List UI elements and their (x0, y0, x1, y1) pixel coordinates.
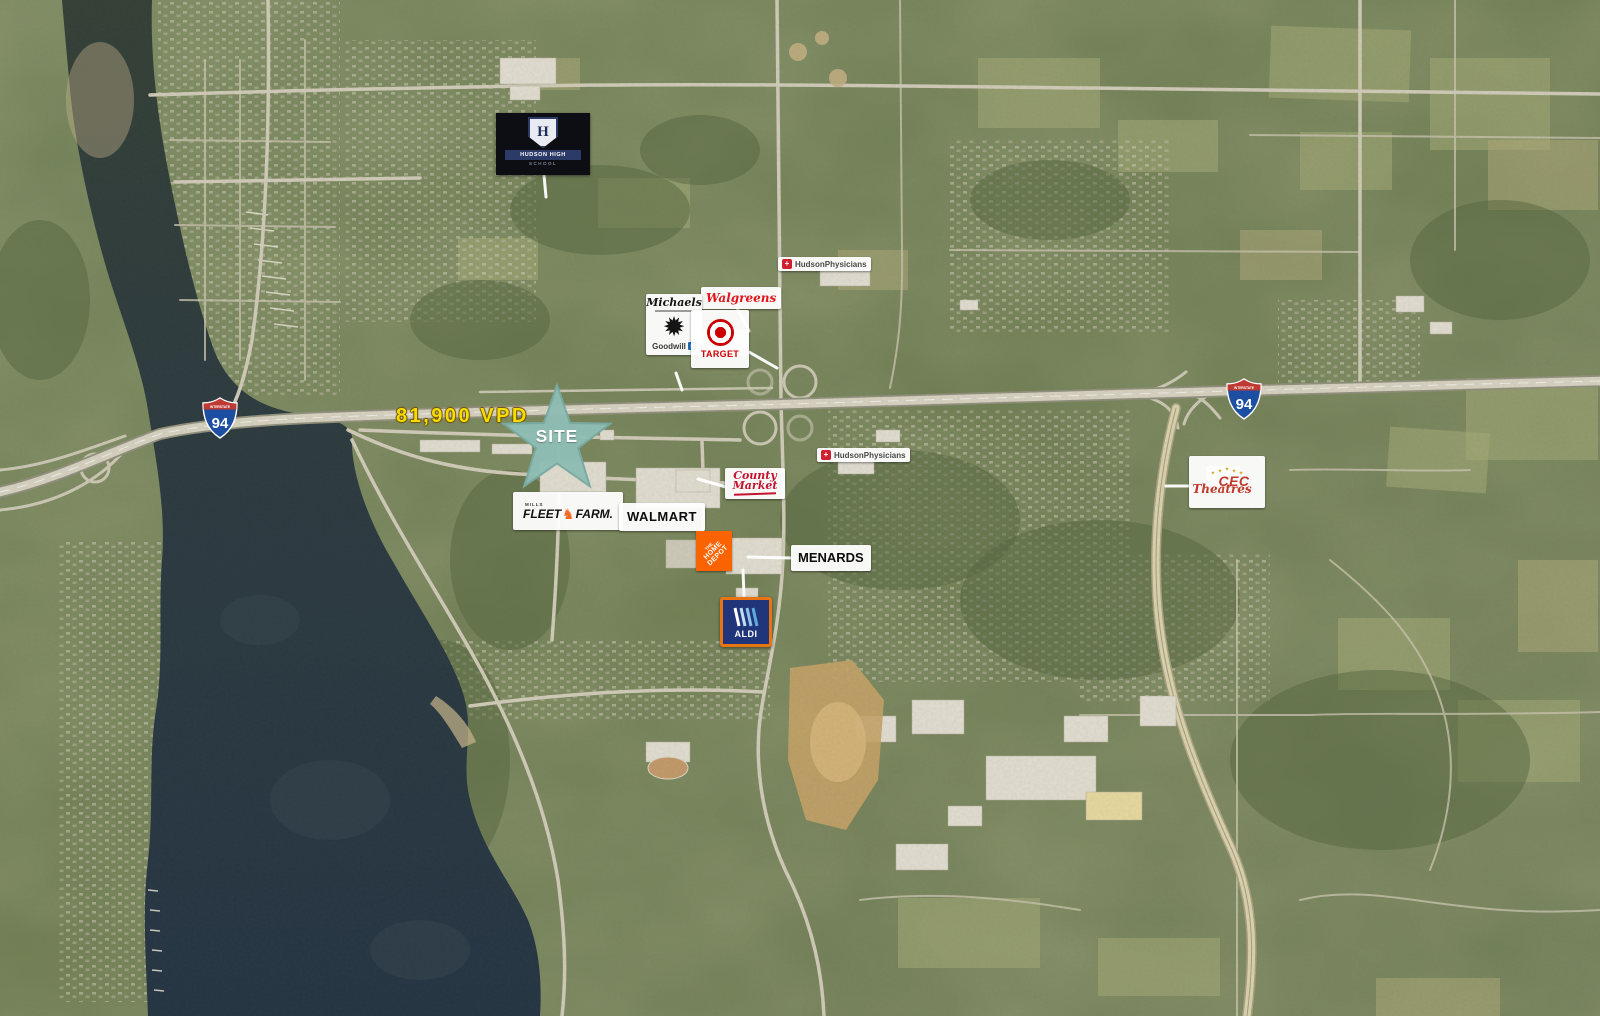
school-banner: HUDSON HIGH (505, 150, 581, 160)
svg-text:94: 94 (212, 415, 229, 432)
aldi-stripes-icon (731, 606, 761, 628)
svg-text:INTERSTATE: INTERSTATE (210, 405, 231, 409)
fleet-farm-label: MILLS FLEET ♞ FARM. (513, 492, 623, 530)
site-star-marker: SITE (496, 377, 618, 499)
hudson-physicians-south-label: + HudsonPhysicians (817, 448, 910, 462)
home-depot-label: THE HOME DEPOT (696, 531, 732, 571)
svg-text:SITE: SITE (536, 426, 578, 446)
medical-cross-icon: + (782, 259, 792, 269)
county-market-label: County Market (725, 468, 785, 499)
michaels-logo: Michaels (646, 297, 702, 308)
fleet-farm-horse-icon: ♞ (562, 508, 575, 520)
hudson-physicians-north-label: + HudsonPhysicians (778, 257, 871, 271)
aldi-label: ALDI (720, 597, 772, 647)
walmart-label: WALMART (619, 503, 705, 531)
menards-label: MENARDS (791, 545, 871, 571)
goodwill-logo: Goodwill g (652, 342, 696, 351)
hudson-high-school-badge: H HUDSON HIGH SCHOOL (496, 113, 590, 175)
school-subbanner: SCHOOL (529, 161, 557, 166)
walgreens-label: Walgreens (701, 287, 781, 309)
svg-text:94: 94 (1236, 396, 1253, 413)
cec-theatres-label: ✦✦✦✦✦ CEC Theatres (1189, 456, 1265, 508)
interstate-94-shield-east: INTERSTATE 94 (1226, 378, 1262, 420)
medical-cross-icon: + (821, 450, 831, 460)
svg-text:INTERSTATE: INTERSTATE (1234, 386, 1255, 390)
interstate-94-shield-west: INTERSTATE 94 (202, 397, 238, 439)
target-label: TARGET (691, 310, 749, 368)
starburst-logo-icon: ✹ (663, 313, 686, 341)
target-bullseye-icon (707, 319, 734, 346)
county-market-swoosh (734, 492, 776, 495)
home-depot-diagonal-text: THE HOME DEPOT (698, 535, 730, 567)
school-shield-icon: H (528, 117, 558, 148)
satellite-imagery (0, 0, 1600, 1016)
aerial-site-map: H HUDSON HIGH SCHOOL + HudsonPhysicians … (0, 0, 1600, 1016)
